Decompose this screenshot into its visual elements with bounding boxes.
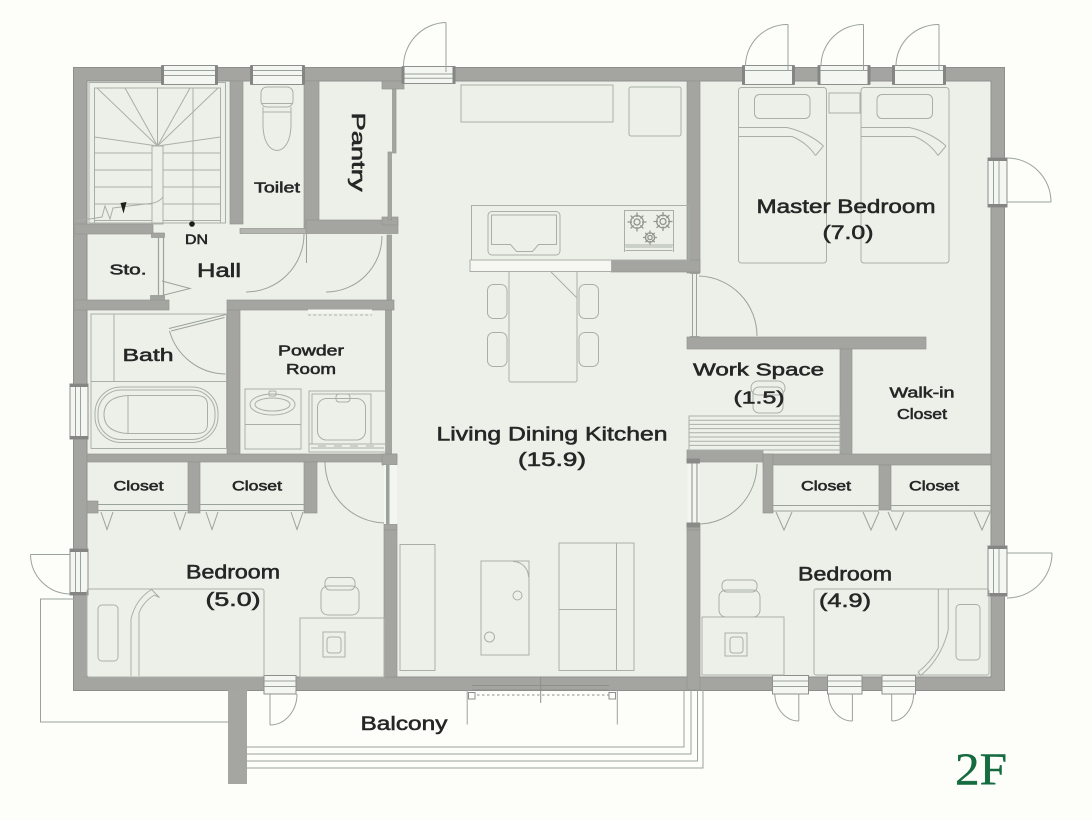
svg-text:Pantry: Pantry xyxy=(348,113,368,192)
svg-text:Closet: Closet xyxy=(801,479,851,494)
svg-text:Closet: Closet xyxy=(909,479,959,494)
svg-text:Hall: Hall xyxy=(197,261,241,282)
svg-text:Closet: Closet xyxy=(114,479,164,494)
svg-text:Powder: Powder xyxy=(278,344,344,360)
svg-text:(1.5): (1.5) xyxy=(734,388,785,408)
svg-text:Balcony: Balcony xyxy=(361,714,449,735)
svg-text:Bedroom: Bedroom xyxy=(798,565,892,586)
svg-text:Toilet: Toilet xyxy=(254,181,300,197)
svg-text:(15.9): (15.9) xyxy=(518,450,586,471)
svg-text:(7.0): (7.0) xyxy=(823,223,874,244)
svg-text:Walk-in: Walk-in xyxy=(890,386,955,402)
svg-text:Room: Room xyxy=(286,362,336,378)
svg-text:Closet: Closet xyxy=(232,479,282,494)
svg-text:(5.0): (5.0) xyxy=(206,590,261,611)
svg-text:Bedroom: Bedroom xyxy=(186,563,280,584)
svg-text:Closet: Closet xyxy=(897,407,947,423)
svg-text:Living Dining Kitchen: Living Dining Kitchen xyxy=(437,425,668,446)
svg-text:Bath: Bath xyxy=(123,345,174,365)
svg-text:Sto.: Sto. xyxy=(110,263,147,279)
svg-text:2F: 2F xyxy=(955,744,1007,795)
svg-text:Master Bedroom: Master Bedroom xyxy=(757,197,936,218)
svg-text:Work Space: Work Space xyxy=(693,360,824,380)
svg-text:DN: DN xyxy=(185,232,208,247)
svg-text:(4.9): (4.9) xyxy=(819,591,871,612)
